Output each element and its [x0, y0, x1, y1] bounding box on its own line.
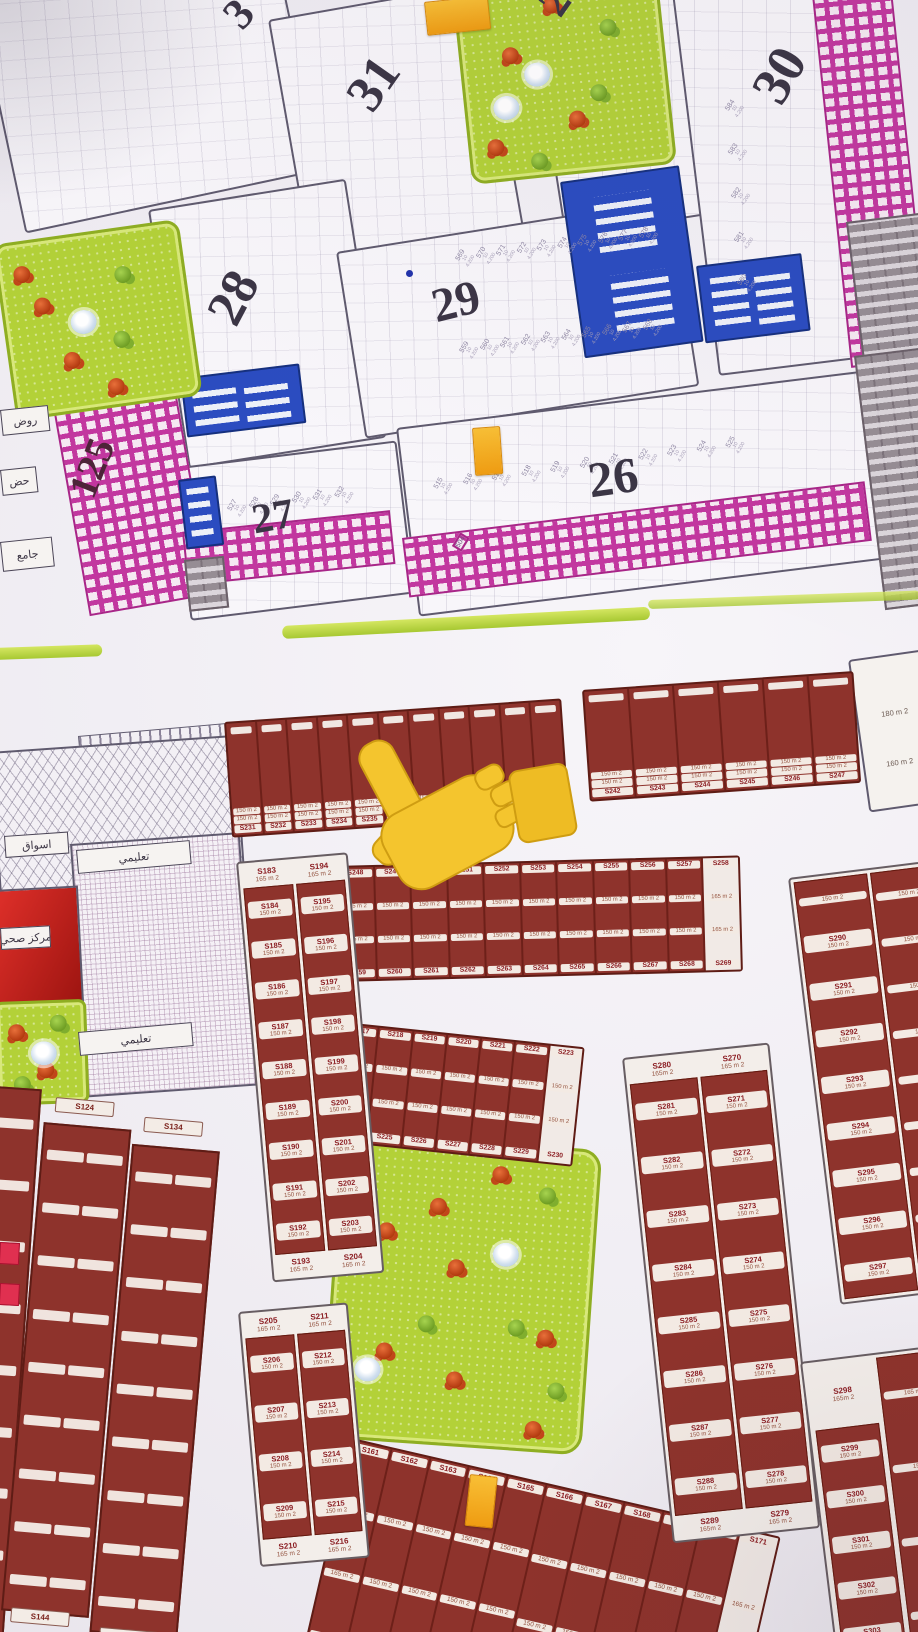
- plot-area: 150 m 2: [325, 1507, 347, 1515]
- plot-area: 150 m 2: [234, 815, 261, 824]
- plot-area: 150 m 2: [845, 1497, 867, 1506]
- plot-id: S258: [704, 860, 737, 869]
- nursery-label: حض: [0, 466, 39, 496]
- plot-id: S267: [634, 961, 667, 970]
- plot-area: 165 m 2: [342, 1260, 366, 1269]
- plot-area: 150 m 2: [325, 809, 352, 818]
- plot-area: 150 m 2: [647, 1580, 684, 1596]
- plot-cell: S198150 m 2: [310, 1014, 355, 1035]
- plot-area: 165 m 2: [904, 1388, 918, 1397]
- plot-area: 150 m 2: [547, 1083, 578, 1093]
- plot-area: 150 m 2: [632, 895, 665, 903]
- tree-icon: [375, 1342, 393, 1360]
- plot-area: 150 m 2: [336, 1186, 358, 1194]
- plot-cell: S203150 m 2: [328, 1216, 373, 1237]
- plot-cell: S285150 m 2: [657, 1312, 720, 1335]
- kindergarten-label: روض: [0, 405, 50, 436]
- plot-area: 150 m 2: [280, 1151, 302, 1159]
- plot-cell: [133, 1170, 214, 1189]
- plot-cell: S296150 m 2: [838, 1210, 907, 1235]
- plot-label-blurred: [77, 1259, 114, 1272]
- plot-cell: S283150 m 2: [646, 1205, 709, 1228]
- plot-cell: S303150 m 2: [843, 1621, 902, 1632]
- plot-cell: 150 m 2: [910, 1605, 918, 1621]
- plot-id: S220: [448, 1037, 479, 1049]
- plot-area: 150 m 2: [851, 1542, 873, 1551]
- plot-area: 150 m 2: [362, 1576, 399, 1592]
- plot-label-blurred: [160, 1334, 197, 1347]
- plot-cell: S288150 m 2: [674, 1472, 737, 1495]
- plot-number: 518104.200: [520, 464, 542, 484]
- plot-id: S255: [595, 862, 628, 871]
- plot-area: 150 m 2: [440, 1594, 477, 1610]
- plot-area: 150 m 2: [479, 1603, 516, 1619]
- plot-area: 150 m 2: [407, 1102, 438, 1112]
- plot-area: 150 m 2: [277, 1110, 299, 1118]
- plot-label-blurred: [0, 1116, 34, 1129]
- plot-cell: 150 m 2: [875, 885, 918, 901]
- plot-cell: S204165 m 2: [328, 1248, 379, 1272]
- plot-area: 150 m 2: [317, 1408, 339, 1416]
- plot-id: S264: [524, 964, 557, 973]
- plot-id: S256: [631, 861, 664, 870]
- plot-number: 571104.200: [495, 243, 517, 263]
- plot-area: 150 m 2: [570, 1562, 607, 1578]
- plot-id: S265: [561, 963, 594, 972]
- plot-area: 150 m 2: [444, 1072, 475, 1082]
- plot-number: 524104.200: [696, 439, 718, 459]
- plot-area: 150 m 2: [678, 1324, 700, 1332]
- plot-id: S254: [558, 863, 591, 872]
- plot-cell: S202150 m 2: [324, 1175, 369, 1196]
- bush-icon: [417, 1315, 435, 1333]
- plot-cell: 150 m 2: [892, 1023, 918, 1039]
- plot-label-blurred: [47, 1149, 84, 1162]
- plot-area: 150 m 2: [410, 1069, 441, 1079]
- plot-area: 150 m 2: [264, 813, 291, 822]
- plot-area: 180 m 2: [865, 704, 918, 721]
- plot-cell: [7, 1573, 88, 1592]
- plot-cell: [114, 1382, 195, 1401]
- plot-area: 150 m 2: [270, 1030, 292, 1038]
- plot-cell: S299150 m 2: [820, 1439, 879, 1463]
- plot-cell: S274150 m 2: [722, 1251, 785, 1274]
- plot-area: 150 m 2: [669, 894, 702, 902]
- plot-area: 165 m 2: [308, 1320, 332, 1329]
- plot-area: 150 m 2: [667, 1217, 689, 1225]
- tree-icon: [501, 46, 520, 65]
- plot-number: 564104.200: [560, 328, 582, 348]
- plot-area: 150 m 2: [312, 904, 334, 912]
- building-icon: [243, 377, 292, 422]
- plot-cell: S196150 m 2: [303, 934, 348, 955]
- plot-cell: S215150 m 2: [314, 1496, 358, 1517]
- plot-area: 150 m 2: [377, 902, 410, 910]
- tree-icon: [537, 1329, 555, 1347]
- plot-column: S252 150 m 2 150 m 2 S263: [484, 863, 523, 976]
- plot-cell: S277150 m 2: [739, 1411, 802, 1434]
- tree-icon: [8, 1024, 26, 1042]
- plot-number: 576104.200: [597, 231, 619, 251]
- plot-label-blurred: [142, 1546, 179, 1559]
- plot-area: 150 m 2: [450, 900, 483, 908]
- bush-icon: [49, 1014, 67, 1032]
- plot-cell: S273150 m 2: [716, 1197, 779, 1220]
- plot-area: 150 m 2: [295, 811, 322, 820]
- plot-cell: S300150 m 2: [826, 1485, 885, 1509]
- plot-number: 523104.200: [666, 443, 688, 463]
- plot-label-blurred: [19, 1468, 56, 1481]
- plot-area: 150 m 2: [673, 1270, 695, 1278]
- plot-area: 150 m 2: [748, 1316, 770, 1324]
- plot-id: S233: [295, 819, 322, 829]
- tree-icon: [445, 1371, 463, 1389]
- plot-area: 150 m 2: [608, 1571, 645, 1587]
- plot-id: S226: [403, 1136, 434, 1148]
- red-marker: [0, 1242, 20, 1265]
- souq-label: اسواق: [4, 832, 69, 858]
- plot-id: S218: [380, 1030, 411, 1042]
- pond-icon: [354, 1356, 382, 1382]
- plot-cell: S298 165m 2: [808, 1360, 878, 1428]
- plot-area: 150 m 2: [559, 897, 592, 905]
- plot-number: 573104.200: [536, 238, 558, 258]
- plot-area: 165m 2: [699, 1524, 721, 1533]
- plot-area: 150 m 2: [827, 941, 849, 950]
- plot-area: 150 m 2: [543, 1117, 574, 1127]
- building-footprint-icon: [230, 726, 251, 734]
- plot-cell: S209150 m 2: [263, 1501, 307, 1522]
- plot-area: 165 m 2: [725, 1598, 762, 1614]
- bush-icon: [113, 265, 132, 284]
- plot-area: 150 m 2: [475, 1110, 506, 1120]
- plot-label-blurred: [112, 1437, 149, 1450]
- plot-label-blurred: [9, 1574, 46, 1587]
- plot-cell: S193165 m 2: [276, 1253, 327, 1277]
- plot-cell: S279165 m 2: [745, 1504, 814, 1531]
- plot-area: 165 m 2: [308, 870, 332, 879]
- plot-number: 572104.200: [516, 241, 538, 261]
- plot-cell: S286150 m 2: [663, 1365, 726, 1388]
- plot-cell: S276150 m 2: [733, 1358, 796, 1381]
- plot-area: 165m 2: [651, 1069, 673, 1078]
- plot-cell: 150 m 2: [914, 1207, 918, 1223]
- corner-plot: 180 m 2 160 m 2: [848, 649, 918, 812]
- plot-area: 150 m 2: [415, 1524, 452, 1540]
- tree-icon: [33, 296, 52, 315]
- road-median: [282, 607, 650, 639]
- road-median: [0, 644, 102, 660]
- plot-id: S244: [682, 780, 723, 791]
- plot-label-blurred: [98, 1596, 135, 1609]
- plot-area: 150 m 2: [850, 1129, 872, 1138]
- building-footprint-icon: [678, 687, 713, 696]
- plot-cell: S282150 m 2: [641, 1151, 704, 1174]
- block-number-26: 26: [585, 449, 641, 505]
- plot-id: S231: [234, 823, 261, 833]
- plot-cell: S302150 m 2: [837, 1576, 896, 1600]
- plot-cell: [128, 1223, 209, 1242]
- plot-id: S227: [437, 1140, 468, 1152]
- plot-label-blurred: [72, 1312, 109, 1325]
- plot-cell: S216165 m 2: [314, 1533, 364, 1557]
- plot-id: S247: [816, 771, 857, 782]
- sticky-marker: [472, 426, 503, 476]
- plot-area: 150 m 2: [326, 1066, 348, 1074]
- plot-area: 150 m 2: [312, 1359, 334, 1367]
- plot-cell: S187150 m 2: [258, 1019, 303, 1040]
- plot-label-blurred: [0, 1486, 8, 1499]
- plot-area: 150 m 2: [760, 1423, 782, 1431]
- plot-label-blurred: [116, 1383, 153, 1396]
- mosque-label: جامع: [0, 537, 55, 572]
- plot-id: S163: [429, 1460, 466, 1477]
- bush-icon: [538, 1187, 556, 1205]
- plot-area: 150 m 2: [340, 1227, 362, 1235]
- plot-id: S232: [265, 821, 292, 831]
- plot-cell: 150 m 2: [898, 1069, 918, 1085]
- plot-label-blurred: [49, 1578, 86, 1591]
- plot-id: S221: [482, 1041, 513, 1053]
- plot-cell: 150 m 2: [892, 1458, 918, 1474]
- plot-cell: 150 m 2 150 m 2 S246: [764, 676, 816, 787]
- plot-area: 150 m 2: [487, 932, 520, 940]
- bush-icon: [547, 1382, 565, 1400]
- building-icon: [754, 273, 796, 325]
- plot-cell: [0, 1177, 31, 1193]
- tree-icon: [12, 265, 31, 284]
- plot-label-blurred: [137, 1599, 174, 1612]
- building-footprint-icon: [261, 724, 282, 732]
- plot-cell: S194165 m 2: [294, 858, 345, 882]
- plot-id: S165: [507, 1478, 544, 1495]
- block-number-27: 27: [249, 493, 298, 542]
- plot-label-blurred: [67, 1365, 104, 1378]
- plot-id: S268: [671, 960, 704, 969]
- plot-block-s290-s297: 150 m 2S290150 m 2S291150 m 2S292150 m 2…: [788, 859, 918, 1305]
- plot-label-blurred: [86, 1153, 123, 1166]
- plot-area: 150 m 2: [414, 934, 447, 942]
- road-median: [648, 591, 918, 609]
- plot-cell: S281150 m 2: [635, 1098, 698, 1121]
- building-footprint-icon: [352, 718, 373, 726]
- plot-cell: 150 m 2: [901, 1531, 918, 1547]
- plot-id: S168: [623, 1505, 660, 1522]
- park-left: [0, 219, 203, 421]
- plot-area: 150 m 2: [450, 933, 483, 941]
- plot-cell: S183165 m 2: [241, 862, 292, 886]
- plot-number: 519104.200: [549, 460, 571, 480]
- plot-area: 150 m 2: [259, 909, 281, 917]
- building-footprint-icon: [588, 693, 623, 702]
- plot-area: 165 m 2: [706, 926, 739, 934]
- plot-cell: 150 m 2: [903, 1115, 918, 1131]
- plot-area: 165 m 2: [277, 1550, 301, 1559]
- plot-cell: [110, 1435, 191, 1454]
- plot-area: 150 m 2: [513, 1079, 544, 1089]
- plot-area: 150 m 2: [376, 1065, 407, 1075]
- plot-id: S225: [369, 1133, 400, 1145]
- plot-cell: [35, 1254, 116, 1273]
- plot-area: 150 m 2: [377, 935, 410, 943]
- plot-label-blurred: [102, 1543, 139, 1556]
- commercial-block-right: [696, 253, 811, 343]
- plot-cell: S301150 m 2: [832, 1530, 891, 1554]
- plot-area: 150 m 2: [633, 928, 666, 936]
- plot-cell: 150 m 2 150 m 2 S243: [629, 686, 681, 797]
- hand-cuff: [507, 761, 579, 844]
- plot-area: 150 m 2: [661, 1163, 683, 1171]
- plot-label-blurred: [170, 1228, 207, 1241]
- pond-icon: [69, 308, 98, 335]
- plot-area: 150 m 2: [329, 1106, 351, 1114]
- plot-cell: [0, 1362, 19, 1378]
- plot-cell: S295150 m 2: [832, 1163, 901, 1188]
- plot-cell: S184150 m 2: [248, 898, 293, 919]
- plot-area: 160 m 2: [870, 754, 918, 771]
- plot-number: 561104.200: [499, 335, 521, 355]
- plot-label-blurred: [121, 1330, 158, 1343]
- plot-cell: S293150 m 2: [821, 1069, 890, 1094]
- plot-number: 560104.200: [479, 338, 501, 358]
- plot-id: S257: [668, 860, 701, 869]
- plot-area: 150 m 2: [656, 1110, 678, 1118]
- plot-id: S245: [727, 777, 768, 788]
- plot-label-blurred: [33, 1309, 70, 1322]
- plot-cell: S211165 m 2: [295, 1308, 345, 1332]
- plot-area: 150 m 2: [523, 898, 556, 906]
- plot-id: S162: [391, 1452, 428, 1469]
- plot-area: 165 m 2: [257, 1324, 281, 1333]
- plot-number: 530104.200: [290, 490, 312, 510]
- pond-icon: [30, 1041, 57, 1066]
- plot-area: 150 m 2: [686, 1589, 723, 1605]
- plot-area: 165 m 2: [289, 1265, 313, 1274]
- plot-cell: S278150 m 2: [744, 1465, 807, 1488]
- plot-area: 150 m 2: [524, 931, 557, 939]
- tree-icon: [63, 351, 82, 370]
- plot-id: S234: [326, 817, 353, 827]
- plot-area: 150 m 2: [284, 1191, 306, 1199]
- plot-area: 150 m 2: [531, 1554, 568, 1570]
- plot-column: S255 150 m 2 150 m 2 S266: [594, 860, 633, 973]
- plot-id: S266: [597, 962, 630, 971]
- plot-cell: [0, 1423, 14, 1439]
- plot-area: 150 m 2: [265, 1413, 287, 1421]
- plot-label-blurred: [53, 1524, 90, 1537]
- plot-area: 150 m 2: [856, 1176, 878, 1185]
- plot-label-blurred: [42, 1202, 79, 1215]
- plot-label-blurred: [0, 1363, 16, 1376]
- plot-label-blurred: [63, 1418, 100, 1431]
- plot-id: S242: [592, 786, 633, 797]
- plot-block-s205-s216: S205165 m 2S211165 m 2 S206150 m 2S20715…: [238, 1302, 370, 1567]
- plot-label-blurred: [58, 1471, 95, 1484]
- plot-block-s298-s303: S298 165m 2 S299150 m 2S300150 m 2S30115…: [800, 1344, 918, 1632]
- plot-cell: S207150 m 2: [254, 1402, 298, 1423]
- plot-id: S230: [539, 1151, 570, 1163]
- building-footprint-icon: [723, 684, 758, 693]
- building-footprint-icon: [291, 722, 312, 730]
- building-footprint-icon: [383, 715, 404, 723]
- plot-area: 165 m 2: [328, 1545, 352, 1554]
- plot-id: S303: [863, 1625, 881, 1632]
- plot-row-s242-s247: 150 m 2 150 m 2 S242 150 m 2 150 m 2 S24…: [582, 671, 861, 802]
- plot-area: 150 m 2: [315, 945, 337, 953]
- plot-id: S262: [451, 966, 484, 975]
- plot-column: S258 165 m 2 165 m 2 S269: [703, 857, 740, 970]
- plot-cell: [119, 1329, 200, 1348]
- plot-label-blurred: [165, 1281, 202, 1294]
- plot-area: 165 m 2: [323, 1567, 360, 1583]
- plot-label-blurred: [126, 1277, 163, 1290]
- plot-cell: 150 m 2: [799, 891, 867, 907]
- tree-icon: [107, 377, 126, 396]
- plot-label-blurred: [28, 1362, 65, 1375]
- plot-cell: 150 m 2: [881, 931, 918, 947]
- plot-area: 150 m 2: [695, 1484, 717, 1492]
- plot-cell: 150 m 2 150 m 2 S245: [719, 679, 771, 790]
- plot-area: 150 m 2: [839, 1451, 861, 1460]
- tree-icon: [524, 1420, 542, 1438]
- pond-icon: [492, 95, 520, 122]
- plot-cell: S186150 m 2: [255, 979, 300, 1000]
- plot-cell: S212150 m 2: [301, 1348, 345, 1369]
- plot-cell: S206150 m 2: [250, 1353, 294, 1374]
- plot-number: 565104.200: [581, 325, 603, 345]
- building-footprint-icon: [768, 681, 803, 690]
- plot-area: 165 m 2: [721, 1061, 745, 1070]
- plot-area: 150 m 2: [731, 1156, 753, 1164]
- plot-number: 575104.200: [577, 233, 599, 253]
- plot-cell: S297150 m 2: [844, 1257, 913, 1282]
- plot-area: 150 m 2: [493, 1542, 530, 1558]
- plot-cell: S199150 m 2: [314, 1055, 359, 1076]
- plot-column: S257 150 m 2 150 m 2 S268: [667, 858, 706, 971]
- plot-area: 150 m 2: [862, 1223, 884, 1232]
- plot-area: 150 m 2: [376, 1515, 413, 1531]
- plot-cell: S287150 m 2: [669, 1419, 732, 1442]
- plot-cell: 150 m 2 150 m 2 S244: [674, 682, 726, 793]
- plot-id: S260: [378, 968, 411, 977]
- plot-area: 150 m 2: [287, 1231, 309, 1239]
- plot-cell: S290150 m 2: [803, 929, 872, 954]
- plot-area: 150 m 2: [596, 896, 629, 904]
- tree-icon: [568, 110, 587, 129]
- red-marker: [0, 1283, 20, 1306]
- plot-area: 150 m 2: [274, 1511, 296, 1519]
- plot-cell: S201150 m 2: [321, 1135, 366, 1156]
- sticky-marker: [465, 1474, 498, 1529]
- plot-id: S253: [522, 864, 555, 873]
- plot-cell: S188150 m 2: [262, 1059, 307, 1080]
- plot-area: 150 m 2: [737, 1209, 759, 1217]
- plot-cell: S210165 m 2: [263, 1537, 313, 1561]
- plot-area: 150 m 2: [509, 1113, 540, 1123]
- plot-id: S124: [55, 1097, 115, 1117]
- plot-id: S246: [771, 774, 812, 785]
- plot-id: S263: [488, 965, 521, 974]
- plot-label-blurred: [107, 1490, 144, 1503]
- plot-column: S253 150 m 2 150 m 2 S264: [521, 862, 560, 975]
- plot-label-blurred: [135, 1171, 172, 1184]
- plot-cell: [12, 1520, 93, 1539]
- plot-area: 150 m 2: [263, 949, 285, 957]
- plot-id: S222: [516, 1044, 547, 1056]
- plot-cell: [124, 1276, 205, 1295]
- plot-id: S223: [550, 1048, 581, 1060]
- plot-label-blurred: [37, 1255, 74, 1268]
